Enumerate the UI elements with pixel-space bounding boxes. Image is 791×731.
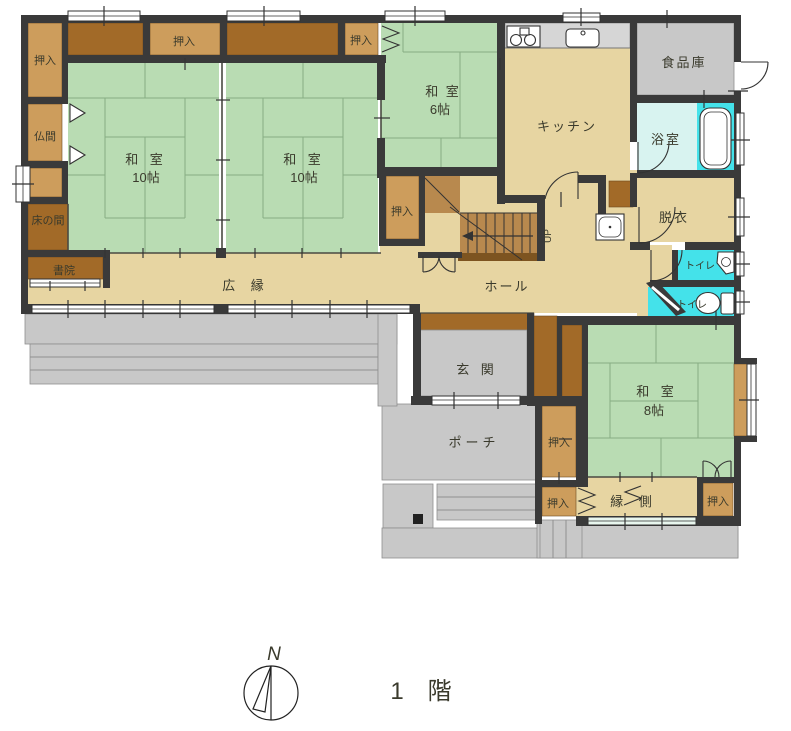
- entrance-step: [419, 313, 534, 330]
- hall-label: ホール: [484, 279, 529, 294]
- porch-planter: [383, 484, 433, 528]
- hiroen-label: 広 縁: [222, 278, 270, 293]
- window-alcove-floor: [28, 168, 62, 197]
- dressing-label: 脱衣: [659, 210, 689, 225]
- hall-cabinet: [609, 181, 633, 207]
- kitchen-floor: [505, 23, 630, 196]
- washitsu-n-label: 和 室: [283, 152, 325, 167]
- terrace-side-strip: [378, 314, 397, 406]
- sink-faucet: [581, 31, 585, 35]
- closet-se2-label: 押入: [547, 496, 569, 510]
- floor-plan-drawing: 和 室 10帖 和 室 10帖 和 室 6帖 和 室 8帖 キッチン 食品庫 浴…: [0, 0, 791, 731]
- shoin-label: 書院: [53, 263, 75, 277]
- storage-strip-d: [562, 325, 582, 398]
- toilet-a-label: トイレ: [685, 261, 715, 272]
- bathroom-label: 浴室: [651, 132, 681, 147]
- washitsu-ne-label: 和 室: [425, 84, 461, 99]
- bathtub: [700, 108, 731, 169]
- compass: N: [244, 644, 298, 720]
- toilet-b-label: トイレ: [677, 300, 707, 311]
- washitsu-ne-size: 6帖: [430, 102, 450, 117]
- floor-plan-canvas: 和 室 10帖 和 室 10帖 和 室 6帖 和 室 8帖 キッチン 食品庫 浴…: [0, 0, 791, 731]
- terrace-band: [25, 314, 397, 344]
- washitsu-nw-label: 和 室: [125, 152, 167, 167]
- porch-label: ポーチ: [448, 435, 499, 450]
- butsuma-label: 仏間: [34, 130, 56, 143]
- storage-strip-c: [534, 316, 557, 398]
- tokonoma-label: 床の間: [32, 213, 65, 227]
- washitsu-nw-size: 10帖: [132, 170, 159, 185]
- closet-se3-label: 押入: [707, 494, 729, 508]
- floor-title: 1 階: [390, 678, 451, 705]
- porch-post: [413, 514, 423, 524]
- tokonoma-floor: [28, 204, 68, 250]
- storage-strip-b: [227, 23, 338, 55]
- closet-se1-label: 押入: [548, 435, 570, 449]
- stair-bottom-step: [458, 253, 538, 261]
- pantry-label: 食品庫: [661, 55, 706, 70]
- stove-burner-left: [511, 35, 522, 46]
- closet-stair-label: 押入: [391, 204, 413, 218]
- engawa-side-steps: [540, 520, 582, 558]
- stairs-up-label: UP: [543, 229, 554, 243]
- stove-burner-right: [525, 35, 536, 46]
- toilet-b-tank: [721, 293, 734, 314]
- washitsu-se-label: 和 室: [636, 384, 678, 399]
- closet-nw-label: 押入: [34, 53, 56, 67]
- kitchen-label: キッチン: [537, 119, 597, 134]
- porch-steps: [437, 484, 537, 520]
- closet-top1-label: 押入: [173, 34, 195, 48]
- entrance-label: 玄 関: [456, 362, 498, 377]
- compass-needle: [253, 666, 271, 712]
- compass-north-label: N: [267, 644, 281, 665]
- engawa-label: 縁 側: [610, 494, 658, 509]
- terrace-steps: [30, 344, 378, 384]
- storage-strip-a: [68, 23, 143, 55]
- pantry-door-arc: [741, 62, 768, 89]
- washitsu-n-size: 10帖: [290, 170, 317, 185]
- entrance-sliding-door: [432, 396, 520, 405]
- stove-grill: [520, 28, 529, 35]
- washitsu-se-size: 8帖: [644, 403, 664, 418]
- closet-top2-label: 押入: [350, 33, 372, 47]
